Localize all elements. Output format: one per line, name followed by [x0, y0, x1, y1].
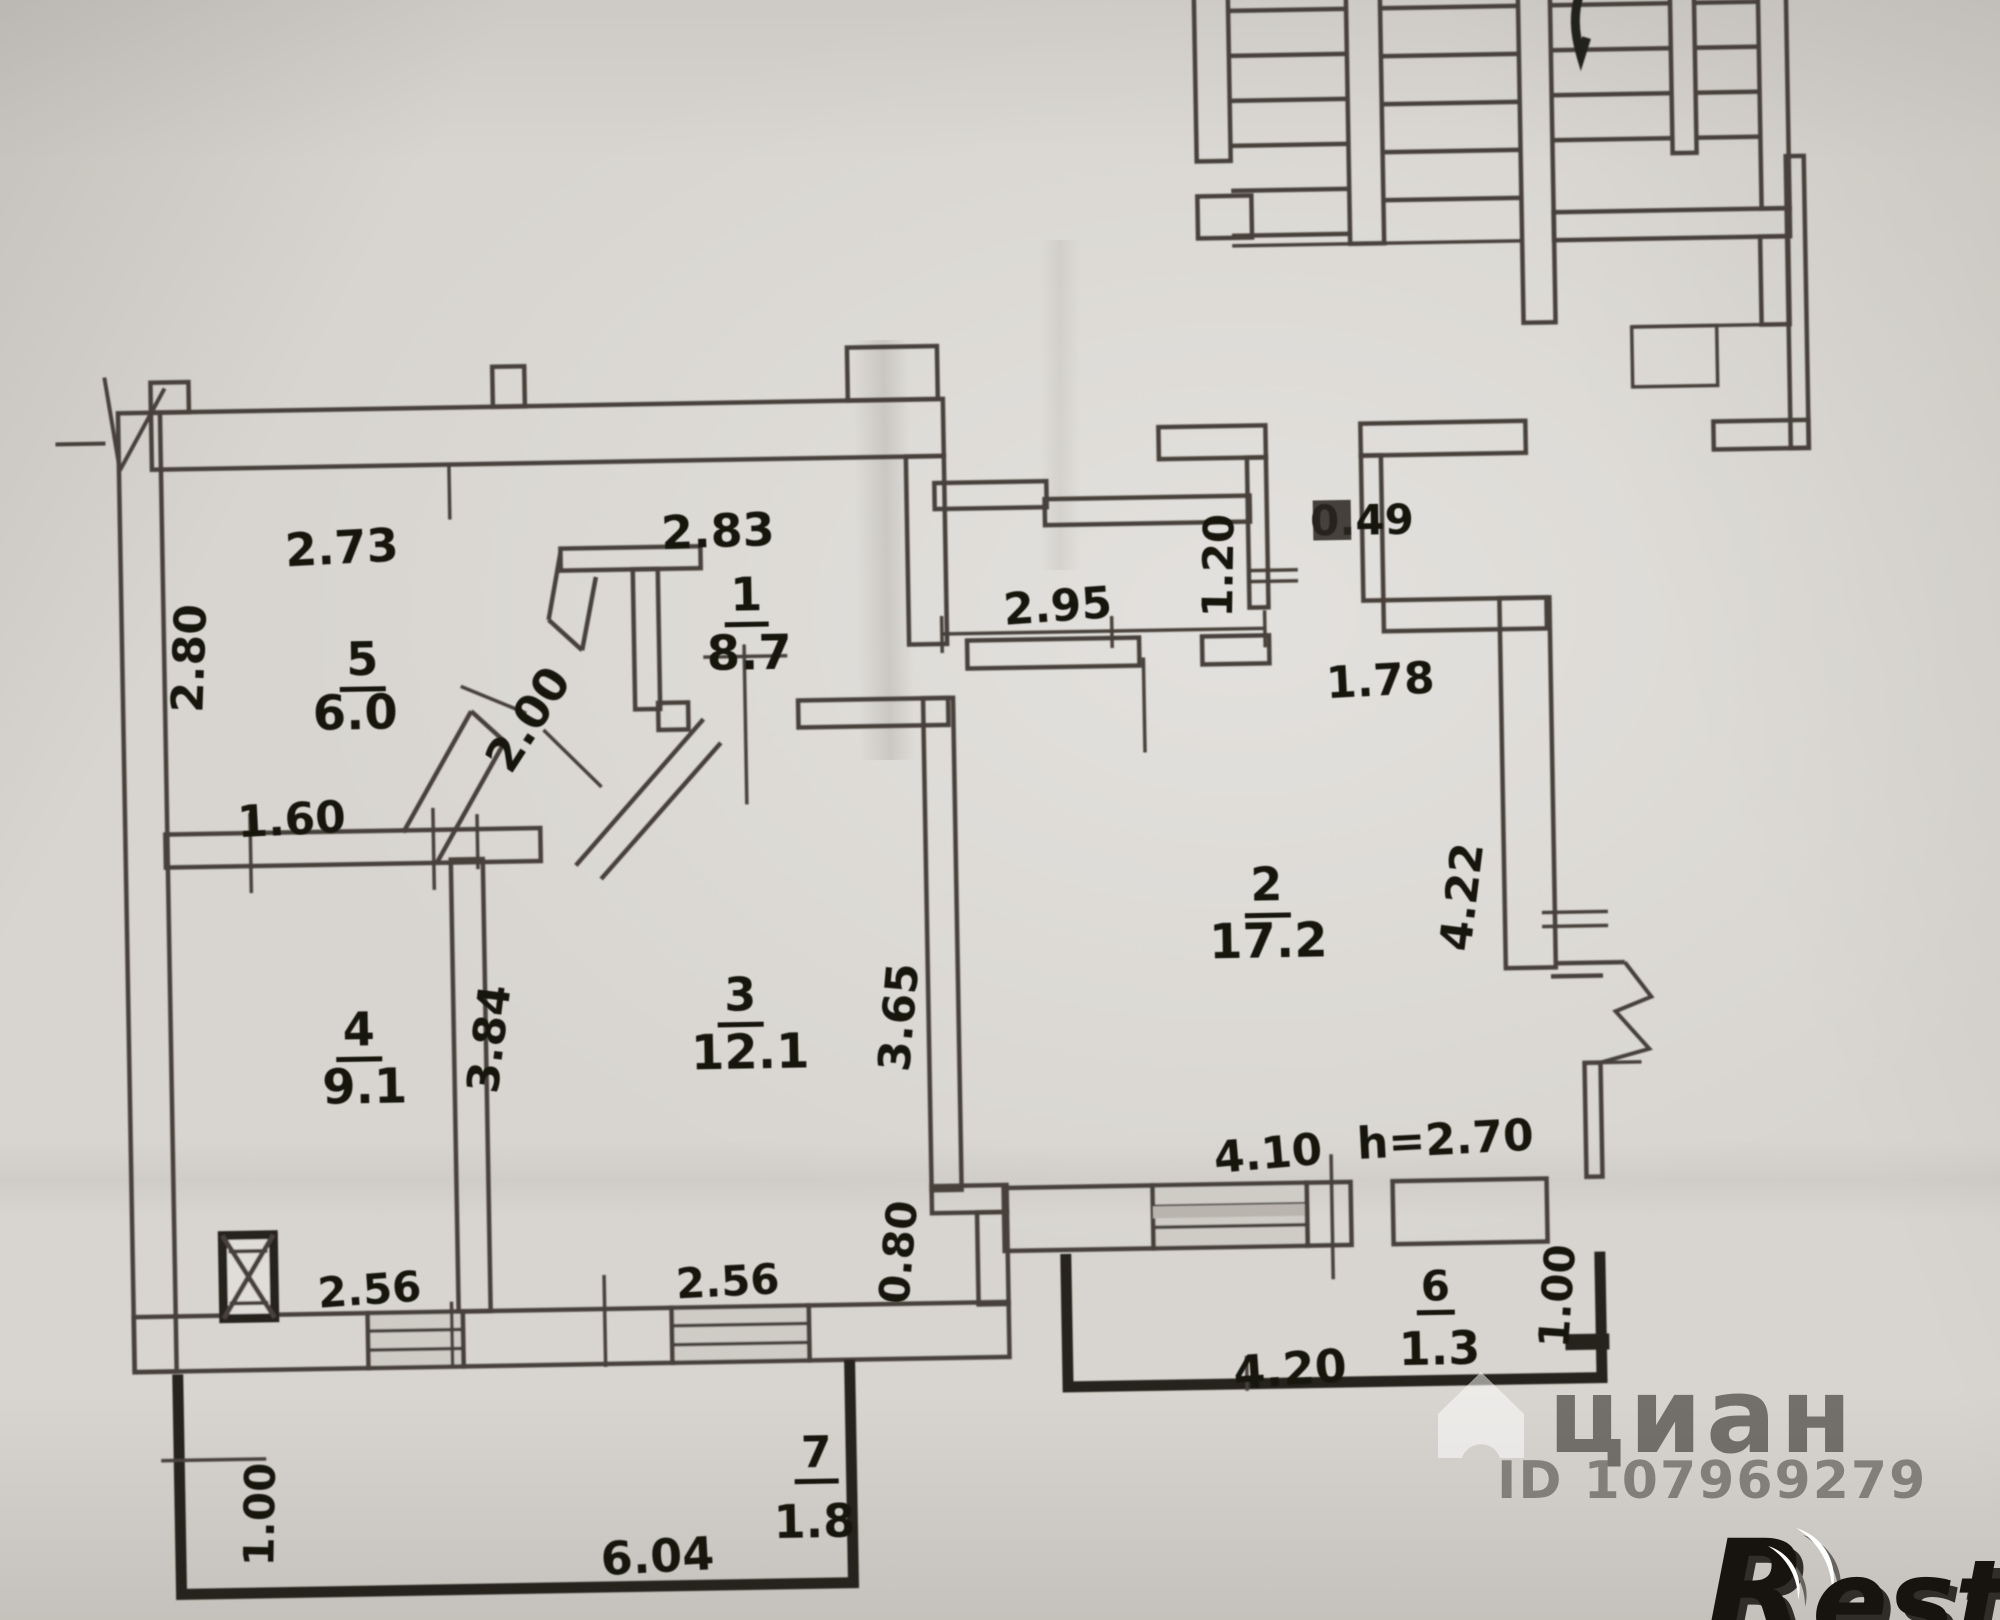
- dim: 2.56: [316, 1262, 423, 1318]
- room-4-label: 4 9.1 3.84 2.56: [311, 981, 527, 1318]
- restate-rest: estate: [1812, 1537, 2000, 1620]
- dim: 1.20: [1193, 513, 1244, 617]
- dim: 3.84: [458, 982, 522, 1096]
- room-area: 1.8: [773, 1494, 855, 1549]
- dim: 2.80: [162, 603, 217, 713]
- window: [1153, 1183, 1308, 1249]
- dim: 4.22: [1430, 840, 1494, 954]
- dim: 0.80: [869, 1199, 927, 1307]
- room-number: 6: [1420, 1261, 1450, 1311]
- room-7-label: 7 1.8 6.04 1.00: [232, 1427, 856, 1593]
- floor-plan-photo: 5 6.0 2.73 2.80 1.60 2.00 1 8.7 2.83 2 1…: [0, 0, 2000, 1620]
- labels: 5 6.0 2.73 2.80 1.60 2.00 1 8.7 2.83 2 1…: [159, 488, 1591, 1593]
- dim: 1.78: [1325, 653, 1436, 710]
- stairwell: [1151, 0, 1809, 459]
- dim: 2.73: [284, 518, 400, 578]
- room-5-label: 5 6.0 2.73 2.80 1.60 2.00: [159, 514, 584, 849]
- dim: 2.00: [475, 657, 582, 782]
- dim: 2.83: [660, 502, 775, 560]
- dim: h=2.70: [1356, 1110, 1535, 1170]
- room-area: 17.2: [1209, 912, 1328, 970]
- room-area: 1.3: [1398, 1321, 1480, 1376]
- dim: 1.60: [236, 792, 347, 849]
- room-number: 5: [346, 632, 379, 687]
- dim: 1.00: [1529, 1243, 1585, 1350]
- room-number: 4: [342, 1002, 375, 1057]
- room-number: 2: [1250, 857, 1283, 912]
- restate-logo: R estate R estate: [1706, 1512, 2000, 1620]
- room-area: 8.7: [706, 625, 792, 682]
- dim: 2.95: [1002, 577, 1114, 635]
- room-1-label: 1 8.7 2.83: [660, 502, 792, 683]
- dim: 1.00: [234, 1462, 285, 1566]
- dim: 3.65: [869, 961, 929, 1074]
- cian-listing-id: ID 107969279: [1497, 1451, 1927, 1511]
- room-number: 1: [730, 567, 763, 622]
- room-area: 12.1: [690, 1023, 809, 1081]
- dim: 6.04: [599, 1526, 715, 1586]
- dim: 4.10: [1212, 1124, 1325, 1184]
- vent-shaft: [222, 1235, 274, 1319]
- dim: 4.20: [1231, 1338, 1348, 1400]
- room-3-label: 3 12.1 3.65 0.80 2.56: [669, 960, 935, 1310]
- room-number: 3: [724, 967, 757, 1022]
- room-area: 9.1: [322, 1058, 408, 1115]
- room-area: 6.0: [312, 685, 398, 742]
- window: [672, 1305, 810, 1362]
- ink-smudge: [1313, 500, 1352, 541]
- dim: 2.56: [675, 1254, 781, 1308]
- room-number: 7: [800, 1427, 832, 1479]
- window: [368, 1311, 464, 1368]
- interior-walls: [159, 444, 1657, 1319]
